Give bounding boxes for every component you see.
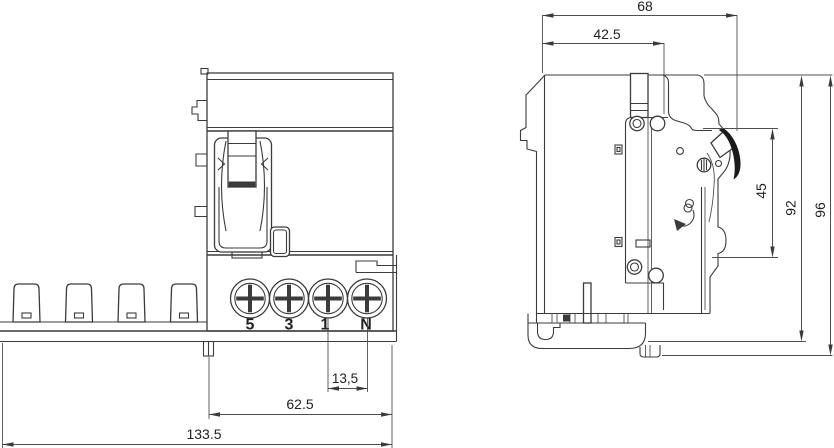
seal-hook-symbol bbox=[674, 200, 694, 232]
left-tab-low bbox=[195, 207, 207, 217]
left-tab-mid bbox=[196, 154, 207, 166]
side-clip-mark-top bbox=[615, 145, 622, 154]
dimension-annotations: 68 42.5 45 92 bbox=[3, 0, 833, 448]
dimension-body-height: 92 bbox=[648, 76, 806, 342]
terminal-screw-5[interactable] bbox=[231, 279, 270, 318]
dimension-label-13-5: 13,5 bbox=[332, 371, 358, 386]
toggle-handle-grip bbox=[229, 182, 256, 188]
left-hook-tab bbox=[192, 101, 207, 121]
busbar-tooth bbox=[118, 284, 145, 322]
terminal-screw-3[interactable] bbox=[270, 279, 309, 318]
panel-rivet-bottom bbox=[649, 268, 664, 283]
drawing-svg: 5 3 1 N bbox=[0, 0, 834, 448]
side-view bbox=[521, 74, 741, 358]
dimension-label-68: 68 bbox=[637, 0, 653, 14]
dimension-label-92: 92 bbox=[783, 200, 799, 216]
small-hole bbox=[716, 161, 722, 167]
front-screw[interactable] bbox=[697, 158, 711, 172]
comb-side-profile bbox=[521, 75, 546, 323]
dimension-label-96: 96 bbox=[812, 202, 828, 218]
pivot-hole bbox=[677, 148, 684, 155]
dimension-label-45: 45 bbox=[753, 183, 769, 199]
front-view: 5 3 1 N bbox=[0, 69, 397, 357]
mounting-pin bbox=[584, 283, 592, 323]
rail-hook bbox=[538, 323, 561, 340]
terminal-screw-N[interactable] bbox=[348, 279, 387, 318]
breaker-panel bbox=[584, 116, 722, 323]
panel-screw-bottom bbox=[627, 260, 641, 274]
terminal-screw-1[interactable] bbox=[309, 279, 348, 318]
toggle-switch[interactable] bbox=[215, 131, 272, 258]
dimension-overall-width: 133.5 bbox=[3, 343, 393, 448]
dimension-label-62-5: 62.5 bbox=[286, 396, 313, 412]
din-rail-base bbox=[528, 314, 710, 358]
test-button[interactable] bbox=[271, 227, 290, 257]
dimension-module-width: 62.5 bbox=[209, 345, 392, 448]
busbar-tooth bbox=[13, 284, 40, 322]
side-toggle-lever[interactable] bbox=[711, 128, 741, 180]
toggle-handle[interactable] bbox=[228, 131, 256, 187]
technical-drawing-canvas: 5 3 1 N bbox=[0, 0, 834, 448]
side-clip-mark-bottom bbox=[615, 238, 622, 247]
panel-rivet-top bbox=[650, 116, 665, 131]
terminal-tower bbox=[631, 74, 669, 118]
panel-screw-top bbox=[630, 116, 644, 130]
busbar-tooth bbox=[171, 284, 198, 322]
busbar-tooth bbox=[66, 284, 93, 322]
dimension-label-42-5: 42.5 bbox=[593, 26, 620, 42]
dimension-label-133-5: 133.5 bbox=[186, 426, 221, 442]
